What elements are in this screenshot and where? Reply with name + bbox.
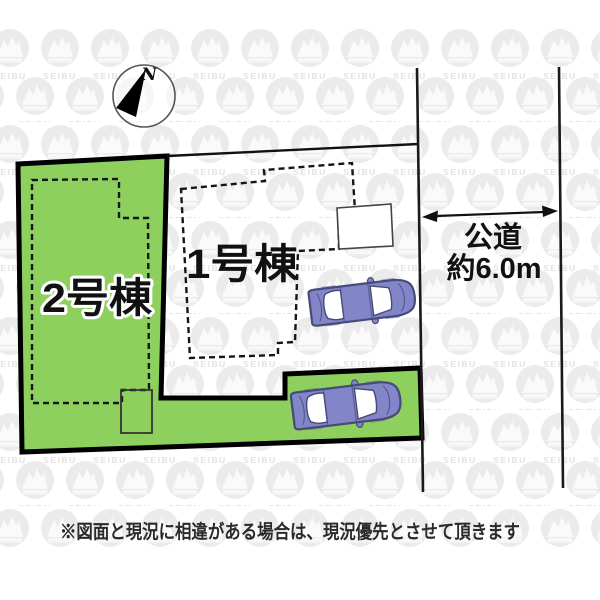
lot1-label: 1号棟 bbox=[186, 241, 299, 287]
site-plan-page: SEIBU bbox=[0, 0, 600, 600]
road-width-label: 約6.0m bbox=[446, 251, 541, 285]
site-plan-drawing: SEIBU bbox=[0, 0, 600, 600]
disclaimer-text: ※図面と現況に相違がある場合は、現況優先とさせて頂きます bbox=[60, 520, 520, 543]
compass-north-label: N bbox=[140, 65, 158, 85]
compass: N bbox=[113, 65, 175, 127]
road-name-label: 公道 bbox=[464, 221, 522, 254]
lot2-label: 2号棟 bbox=[42, 275, 153, 321]
lot1-porch bbox=[337, 204, 393, 249]
